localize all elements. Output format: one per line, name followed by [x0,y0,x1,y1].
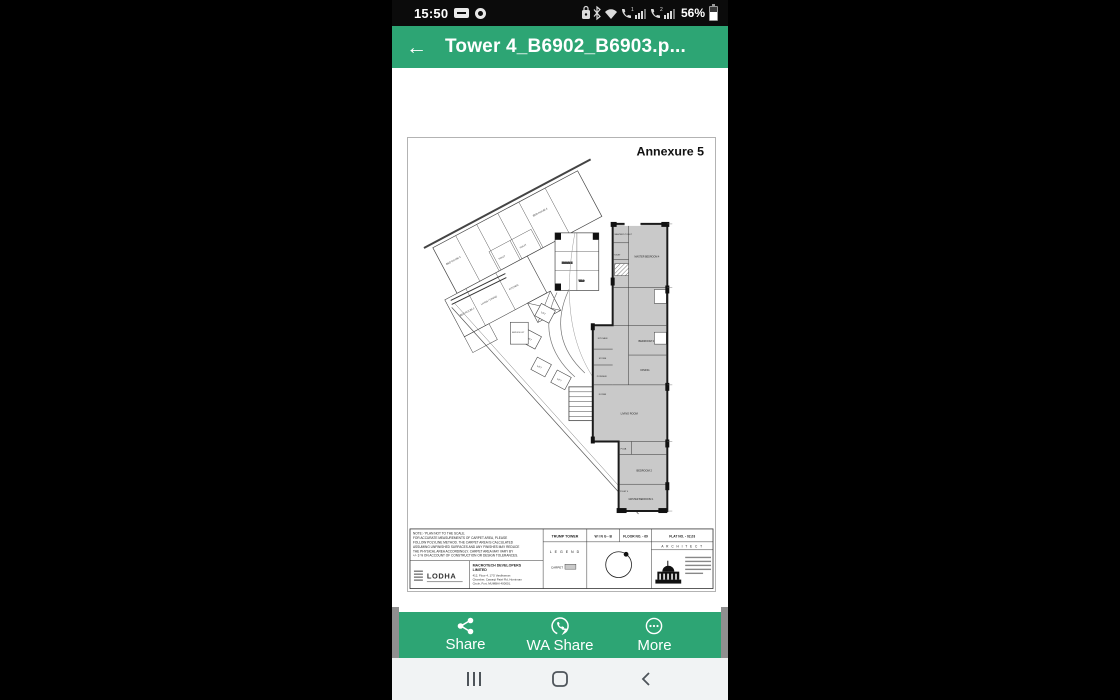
room-label: MASTER BEDROOM 1 [629,498,654,501]
room-label: DINING [640,368,649,372]
room-label: LIVING ROOM [621,412,638,416]
phone-screen: 15:50 [392,0,728,700]
flat-cell: FLAT NO. - 02,03 [669,534,695,538]
project-name: TRUMP TOWER [552,534,579,538]
room-label: BEDROOM 2 [637,468,653,472]
room-label: TOILET 4 [620,491,629,493]
back-chevron-icon [640,671,652,687]
room-label: PASSAGE [562,262,573,265]
android-nav-bar [392,658,728,700]
wing-cell: W I N G - B [595,534,613,538]
share-button[interactable]: Share [436,617,496,653]
note-line: FOR ACCURATE MEASUREMENTS OF CARPET AREA… [413,536,507,540]
wa-share-label: WA Share [527,637,594,654]
north-dot [624,552,629,557]
more-button[interactable]: More [624,616,684,654]
room-label: BEDROOM 3 [638,339,654,343]
share-icon [456,617,476,635]
phone-sim2-icon: 2 [651,7,663,18]
status-bar: 15:50 [392,0,728,26]
lodha-wordmark: LODHA [427,572,456,581]
floor-cell: FLOOR NO. - 69 [623,534,648,538]
recents-button[interactable] [462,667,486,691]
legend-title: L E G E N D [550,550,580,554]
room-label: MASTER'S TOILET [615,233,633,236]
note-line: FOLLOW POLYLINE METHOD. THE CARPET AREA … [413,540,514,544]
home-icon [551,670,569,688]
wa-share-button[interactable]: WA Share [527,616,594,654]
developer-address: Circle, Fort, MUMBAI 400001. [473,582,512,586]
room-label: MASTER BEDROOM 4 [635,256,660,259]
phone-sim1-icon: 1 [622,7,634,18]
title-block: NOTE:- 'PLAN NOT TO THE SCALE. FOR ACCUR… [410,529,713,589]
document-page: Annexure 5 [407,137,716,592]
bluetooth-icon [594,7,600,19]
room-label: FOYER [599,394,607,396]
note-line: THE PHYSICAL AREA ACCORDINGLY. CARPET AR… [413,549,514,553]
status-right: 1 2 56% [581,5,718,21]
keyboard-icon [454,8,469,18]
lock-icon [582,7,590,20]
sim2-label: 2 [660,7,663,13]
document-title: Tower 4_B6902_B6903.p... [445,36,686,58]
data-saver-icon [475,8,486,19]
clock: 15:50 [414,6,448,21]
signal2-icon [664,9,675,19]
back-nav-button[interactable] [634,667,658,691]
annexure-heading: Annexure 5 [636,144,704,158]
signal1-icon [635,9,646,19]
battery-icon [709,6,718,21]
floor-plan-sheet: Annexure 5 [408,138,715,591]
wifi-icon [605,9,617,19]
battery-percent: 56% [681,6,705,20]
more-icon [644,616,664,636]
architect-title: A R C H I T E C T [661,544,703,548]
carpet-label: CARPET [551,566,563,570]
note-line: +/- 3 % ON ACCOUNT OF CONSTRUCTION OR DE… [413,554,518,558]
room-label: POWDER [597,376,607,378]
room-label: PUJA [621,447,627,450]
carpet-swatch [565,564,576,569]
screenshot-stage: 15:50 [0,0,1120,700]
developer-name-2: LIMITED [473,568,488,572]
whatsapp-icon [550,616,570,636]
highlighted-flat: MASTER'S TOILET TOILET MASTER BEDROOM 4 … [591,222,672,513]
room-label: KITCHEN [598,338,608,340]
service-core: PASSAGE W.I.C [555,233,599,291]
developer-name: MACROTECH DEVELOPERS [473,564,522,568]
share-label: Share [445,636,485,653]
room-label: STORE [599,358,607,360]
room-label: W.I.C [579,281,585,283]
room-label: TOILET [614,255,622,257]
viewer-edge-left [392,607,399,658]
recents-icon [466,671,482,687]
action-bar: Share WA Share More [392,612,728,658]
home-button[interactable] [548,667,572,691]
back-button[interactable]: ← [406,37,427,58]
status-icons: 1 2 [581,5,677,21]
viewer-edge-right [721,607,728,658]
sim1-label: 1 [631,7,634,13]
note-line: ASSUMING UNFINISHED SURFACES AND ANY FIN… [413,545,519,549]
note-line: NOTE:- 'PLAN NOT TO THE SCALE. [413,531,465,535]
pdf-viewer[interactable]: Annexure 5 [392,68,728,612]
room-label: SERVICE LIFT [512,332,525,334]
more-label: More [637,637,671,654]
app-header: ← Tower 4_B6902_B6903.p... [392,26,728,68]
staircase [569,387,595,421]
lift-block: LIFT LIFT LIFT LIFT [510,303,571,389]
status-left: 15:50 [414,6,486,21]
